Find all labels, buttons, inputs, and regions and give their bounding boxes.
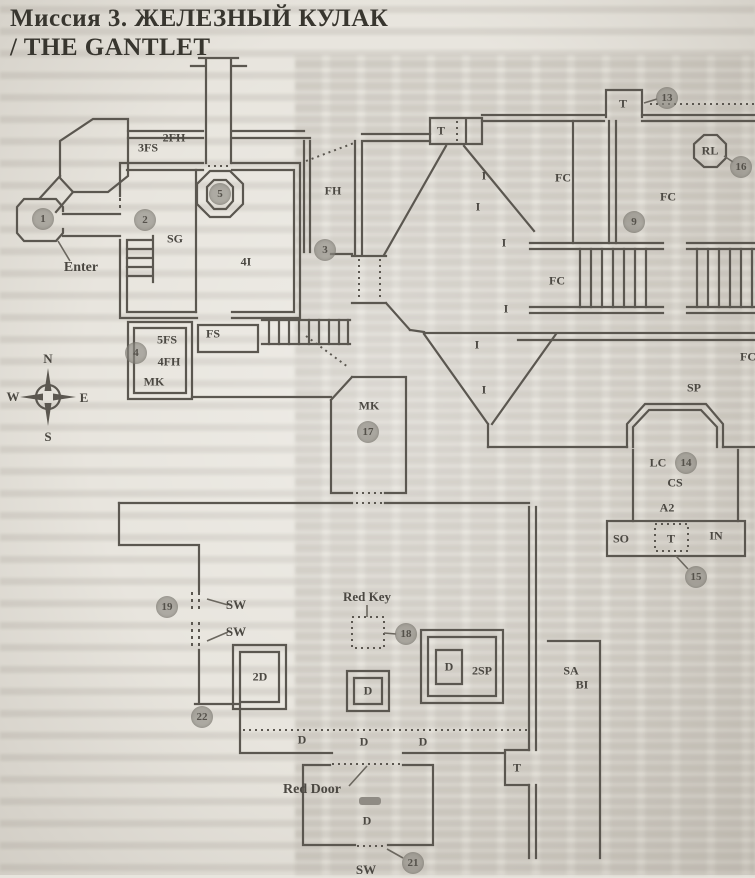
label-4i: 4I [241, 255, 252, 270]
label-d-5: D [445, 660, 454, 675]
label-sg: SG [167, 232, 183, 247]
label-i-5: I [475, 338, 480, 353]
marker-22: 22 [191, 706, 213, 728]
label-in: IN [709, 529, 722, 544]
level-map: 3FS2FHFHSG4IEnter5FS4FHMKFSNWESTTRLFCFCF… [0, 0, 755, 875]
label-d-3: D [360, 735, 369, 750]
marker-17: 17 [357, 421, 379, 443]
label-cs: CS [667, 476, 682, 491]
label-a2: A2 [660, 501, 675, 516]
label-fc-2: FC [660, 190, 676, 205]
label-red-key: Red Key [343, 589, 391, 605]
marker-21: 21 [402, 852, 424, 874]
label-fc-3: FC [549, 274, 565, 289]
scanned-guide-page: { "page": { "title_line1": "Миссия 3. ЖЕ… [0, 0, 755, 875]
label-sa: SA [563, 664, 578, 679]
marker-2: 2 [134, 209, 156, 231]
label-t-3: T [667, 532, 675, 547]
label-bi: BI [576, 678, 589, 693]
label-i-6: I [482, 383, 487, 398]
label-sw-1: SW [226, 597, 246, 613]
label-mk-center: MK [359, 399, 380, 414]
label-sw-3: SW [356, 862, 376, 878]
label-mk-left: MK [144, 375, 165, 390]
label-d-4: D [419, 735, 428, 750]
label-i-3: I [502, 236, 507, 251]
label-fh: FH [325, 184, 342, 199]
label-d-1: D [364, 684, 373, 699]
label-3fs: 3FS [138, 141, 158, 156]
marker-9: 9 [623, 211, 645, 233]
label-4fh: 4FH [158, 355, 181, 370]
marker-1: 1 [32, 208, 54, 230]
label-fc-1: FC [555, 171, 571, 186]
marker-18: 18 [395, 623, 417, 645]
label-fc-4: FC [740, 350, 755, 365]
compass-n: N [43, 351, 52, 367]
label-d-6: D [363, 814, 372, 829]
marker-5: 5 [209, 183, 231, 205]
label-fs: FS [206, 327, 220, 342]
label-t-1: T [437, 124, 445, 139]
compass-s: S [44, 429, 51, 445]
label-2d: 2D [253, 670, 268, 685]
label-t-2: T [619, 97, 627, 112]
label-sp: SP [687, 381, 701, 396]
label-i-2: I [476, 200, 481, 215]
marker-15: 15 [685, 566, 707, 588]
marker-4: 4 [125, 342, 147, 364]
label-so: SO [613, 532, 629, 547]
marker-14: 14 [675, 452, 697, 474]
label-enter: Enter [64, 260, 98, 276]
marker-3: 3 [314, 239, 336, 261]
label-sw-2: SW [226, 624, 246, 640]
label-t-4: T [513, 761, 521, 776]
label-i-4: I [504, 302, 509, 317]
label-red-door: Red Door [283, 782, 341, 798]
label-i-1: I [482, 169, 487, 184]
label-2sp: 2SP [472, 664, 492, 679]
marker-19: 19 [156, 596, 178, 618]
marker-13: 13 [656, 87, 678, 109]
marker-16: 16 [730, 156, 752, 178]
compass-e: E [80, 390, 89, 406]
label-lc: LC [650, 456, 667, 471]
label-rl: RL [702, 144, 719, 159]
compass-w: W [7, 389, 20, 405]
label-2fh: 2FH [163, 131, 186, 146]
label-d-2: D [298, 733, 307, 748]
label-5fs: 5FS [157, 333, 177, 348]
